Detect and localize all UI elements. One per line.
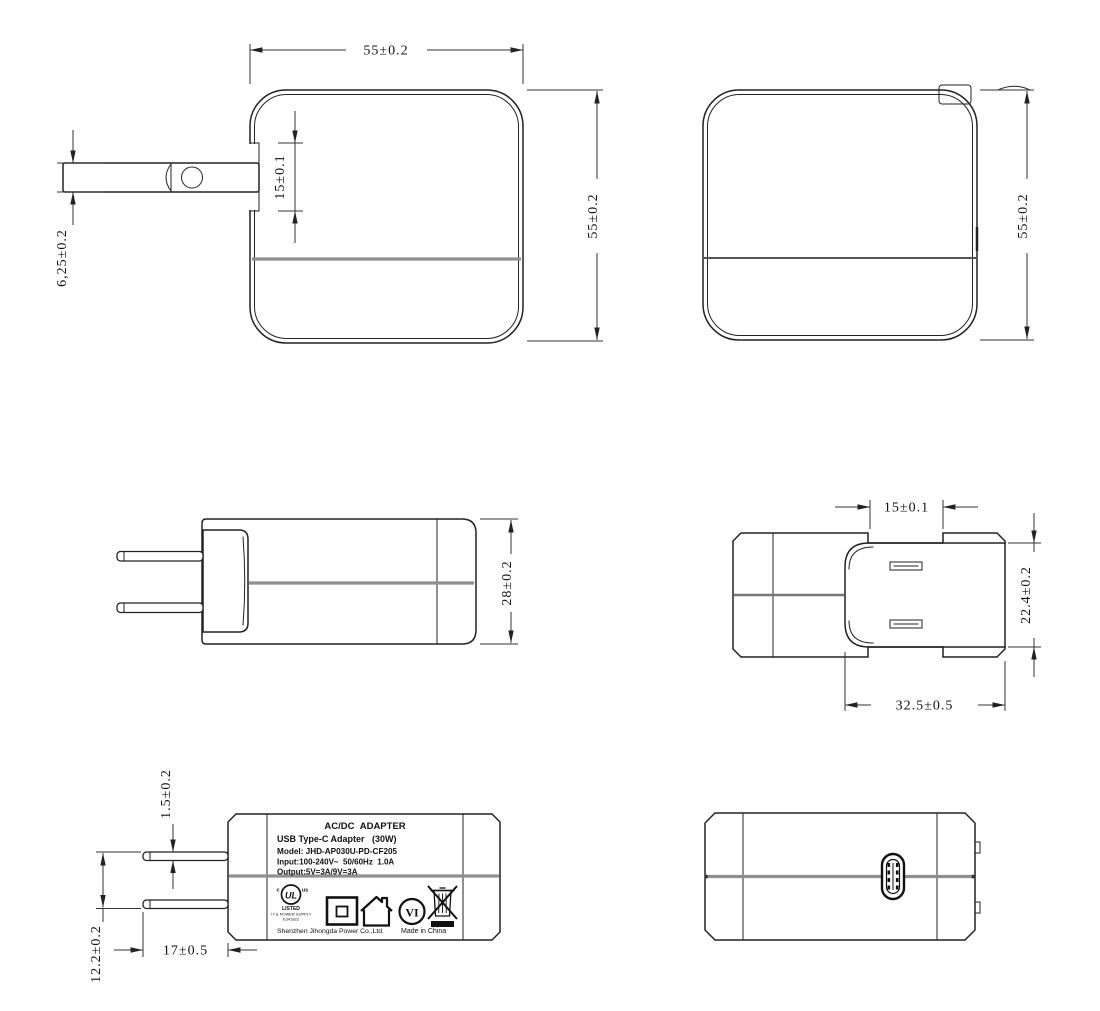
side-depth-dimension: 28±0.2 xyxy=(480,519,518,644)
top-base-height-dimension: 22.4±0.2 xyxy=(1008,513,1041,677)
front-slot-dimension: 15±0.1 xyxy=(273,111,303,243)
top-base-height-dim-text: 22.4±0.2 xyxy=(1019,566,1034,624)
front-body-seam xyxy=(255,95,519,339)
back-body-outline xyxy=(703,90,977,340)
ac-pin-lower xyxy=(143,900,228,909)
front-pin-dim-text: 6,25±0.2 xyxy=(55,229,70,287)
ul-mark-letters: UL xyxy=(285,891,297,901)
ul-mark-us: us xyxy=(302,888,308,894)
efficiency-vi-text: VI xyxy=(405,906,419,920)
front-view: 55±0.2 55±0.2 15±0.1 6,25±0.2 xyxy=(55,44,603,344)
ul-mark-c: c xyxy=(276,888,279,894)
label-input: Input:100-240V~ 50/60Hz 1.0A xyxy=(277,858,394,867)
pin-thickness-dim-text: 1.5±0.2 xyxy=(159,769,174,819)
rating-label: AC/DC ADAPTER USB Type-C Adapter (30W) M… xyxy=(277,821,406,877)
front-height-dim-text: 55±0.2 xyxy=(586,193,601,238)
back-body-seam xyxy=(708,95,973,336)
ul-listed-icon: UL c us LISTED I.T.& POWER SUPPLY E34182… xyxy=(271,885,312,922)
usb-c-port xyxy=(882,854,904,899)
front-width-dim-text: 55±0.2 xyxy=(363,44,408,59)
label-output: Output:5V=3A/9V=3A xyxy=(277,868,358,877)
front-pin-opening xyxy=(243,144,258,210)
top-pin-spacing-dimension: 15±0.1 xyxy=(835,500,978,529)
label-view: AC/DC ADAPTER USB Type-C Adapter (30W) M… xyxy=(89,769,500,983)
back-top-bump xyxy=(998,86,1030,90)
pin-length-dimension: 17±0.5 xyxy=(114,912,257,959)
side-view: 28±0.2 xyxy=(117,519,518,644)
ac-pin-upper xyxy=(143,852,228,861)
top-plug-base xyxy=(845,543,1005,647)
pin-thickness-dimension: 1.5±0.2 xyxy=(159,769,174,889)
pin-gap-dim-text: 12.2±0.2 xyxy=(89,925,104,983)
side-plug-base xyxy=(203,530,248,632)
top-base-width-dim-text: 32.5±0.5 xyxy=(896,699,954,714)
back-height-dimension: 55±0.2 xyxy=(980,90,1034,340)
ac-pin-upper-side xyxy=(117,552,203,562)
front-slot-dim-text: 15±0.1 xyxy=(273,154,288,199)
technical-drawing-page: 55±0.2 55±0.2 15±0.1 6,25±0.2 xyxy=(0,0,1100,1011)
label-model: Model: JHD-AP030U-PD-CF205 xyxy=(277,847,398,856)
side-depth-dim-text: 28±0.2 xyxy=(500,560,515,605)
label-manufacturer: Shenzhen Jihongda Power Co.,Ltd. xyxy=(277,928,384,935)
ac-pin-side xyxy=(63,163,259,192)
front-body-outline xyxy=(250,90,523,343)
label-origin: Made in China xyxy=(401,928,446,935)
weee-bin-icon xyxy=(428,886,457,927)
pin-hole xyxy=(182,167,203,188)
front-height-dimension: 55±0.2 xyxy=(527,90,603,341)
class-ii-icon xyxy=(327,898,357,925)
efficiency-vi-icon: VI xyxy=(400,899,425,924)
label-subtitle: USB Type-C Adapter (30W) xyxy=(277,834,397,844)
back-height-dim-text: 55±0.2 xyxy=(1016,193,1031,238)
front-width-dimension: 55±0.2 xyxy=(250,44,523,85)
bottom-view xyxy=(705,813,981,940)
back-view: 55±0.2 xyxy=(703,85,1034,340)
pin-fold-arc xyxy=(166,164,171,191)
indoor-use-icon xyxy=(361,897,392,926)
top-pin-spacing-dim-text: 15±0.1 xyxy=(884,501,929,516)
ul-mark-file-number: E341822 xyxy=(283,917,300,922)
top-view: 15±0.1 22.4±0.2 32.5±0.5 xyxy=(733,500,1041,714)
pin-length-dim-text: 17±0.5 xyxy=(163,944,208,959)
pin-gap-dimension: 12.2±0.2 xyxy=(89,852,141,983)
front-pin-dimension: 6,25±0.2 xyxy=(55,130,104,287)
label-title: AC/DC ADAPTER xyxy=(324,821,405,832)
ac-pin-lower-side xyxy=(117,603,203,613)
top-base-width-dimension: 32.5±0.5 xyxy=(845,652,1005,714)
adapter-drawing-svg: 55±0.2 55±0.2 15±0.1 6,25±0.2 xyxy=(0,0,1100,1011)
